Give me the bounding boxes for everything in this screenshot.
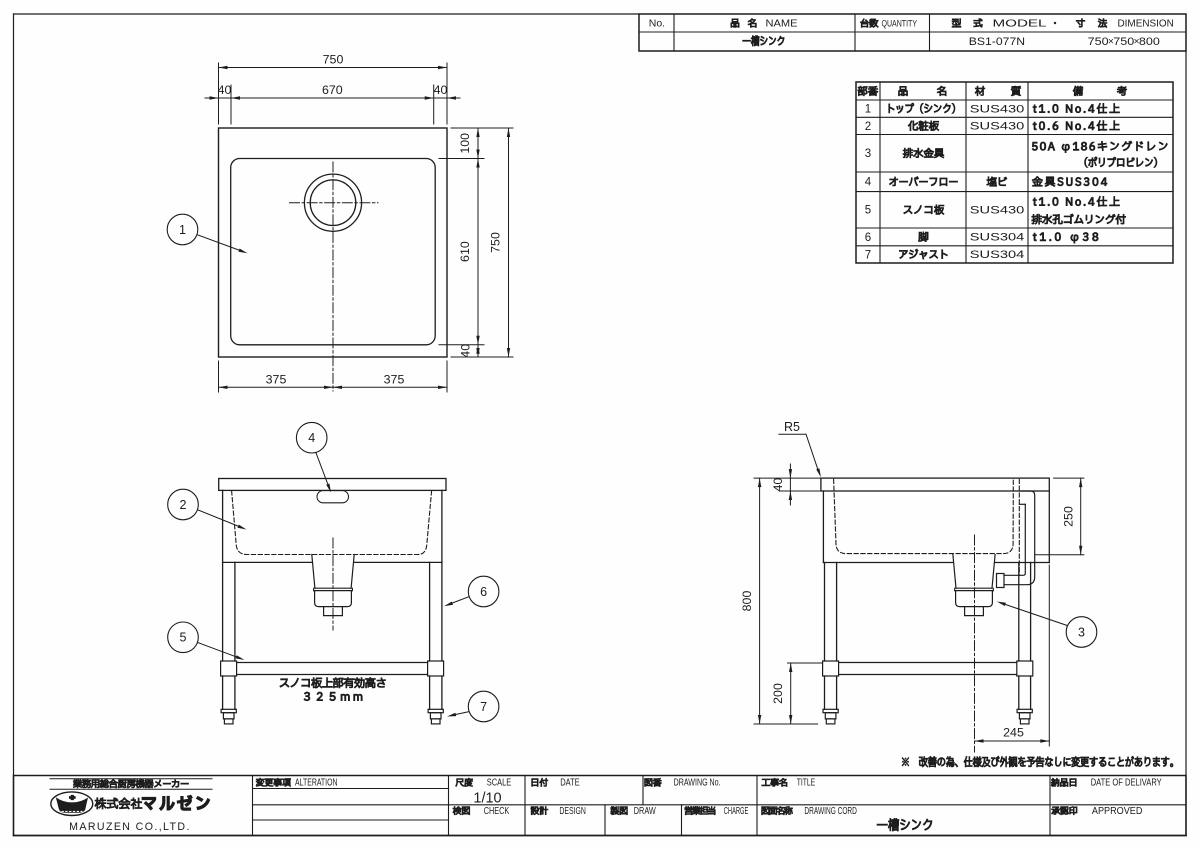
svg-text:DIMENSION: DIMENSION [1118, 18, 1174, 29]
svg-text:SUS430: SUS430 [970, 205, 1025, 217]
svg-text:SUS304: SUS304 [970, 232, 1025, 244]
svg-text:800: 800 [740, 591, 754, 612]
svg-text:DESIGN: DESIGN [559, 806, 586, 817]
svg-text:245: 245 [1003, 726, 1024, 740]
svg-text:1/10: 1/10 [473, 791, 501, 807]
svg-text:2: 2 [865, 121, 871, 133]
svg-text:R5: R5 [784, 420, 800, 434]
svg-text:40: 40 [434, 83, 448, 97]
svg-text:SUS430: SUS430 [970, 104, 1025, 116]
svg-text:3: 3 [865, 148, 871, 160]
svg-text:40: 40 [218, 83, 232, 97]
svg-text:40: 40 [771, 478, 785, 492]
svg-text:BS1-077N: BS1-077N [969, 36, 1025, 48]
svg-text:SUS430: SUS430 [970, 121, 1025, 133]
svg-text:610: 610 [458, 241, 472, 262]
svg-text:DRAW: DRAW [634, 806, 656, 817]
svg-text:SCALE: SCALE [487, 778, 512, 789]
svg-text:200: 200 [771, 683, 785, 704]
svg-text:APPROVED: APPROVED [1092, 806, 1143, 817]
svg-text:5: 5 [180, 631, 187, 645]
svg-text:5: 5 [865, 205, 871, 217]
svg-text:750: 750 [1088, 36, 1109, 48]
svg-text:×: × [1134, 36, 1140, 47]
svg-text:1: 1 [179, 223, 186, 237]
svg-text:NAME: NAME [766, 18, 799, 29]
svg-text:SUS304: SUS304 [970, 249, 1025, 261]
svg-text:750: 750 [1113, 36, 1134, 48]
svg-text:DRAWING No.: DRAWING No. [674, 778, 721, 789]
svg-text:7: 7 [865, 249, 871, 261]
svg-text:MARUZEN CO.,LTD.: MARUZEN CO.,LTD. [69, 821, 191, 833]
svg-text:CHECK: CHECK [484, 806, 510, 817]
svg-text:4: 4 [308, 431, 315, 445]
svg-text:MODEL: MODEL [993, 18, 1048, 29]
svg-text:DRAWING CORD: DRAWING CORD [804, 806, 857, 817]
svg-text:×: × [1108, 36, 1114, 47]
svg-text:6: 6 [480, 585, 487, 599]
svg-text:ALTERATION: ALTERATION [295, 778, 338, 789]
svg-text:375: 375 [384, 372, 405, 386]
svg-text:750: 750 [489, 232, 503, 253]
svg-text:100: 100 [458, 133, 472, 154]
svg-text:1: 1 [865, 104, 871, 116]
svg-text:3: 3 [1078, 625, 1085, 639]
svg-text:DATE: DATE [560, 778, 580, 789]
svg-text:TITLE: TITLE [797, 778, 816, 789]
svg-text:DATE OF DELIVARY: DATE OF DELIVARY [1091, 778, 1162, 789]
svg-text:800: 800 [1139, 36, 1160, 48]
svg-text:375: 375 [266, 372, 287, 386]
svg-text:750: 750 [323, 53, 344, 67]
svg-text:250: 250 [1061, 506, 1075, 527]
svg-text:No.: No. [649, 18, 665, 29]
svg-text:QUANTITY: QUANTITY [882, 18, 918, 28]
svg-text:7: 7 [480, 700, 487, 714]
svg-text:6: 6 [865, 232, 871, 244]
svg-text:40: 40 [459, 344, 473, 358]
svg-text:CHARGE: CHARGE [724, 806, 749, 817]
svg-text:2: 2 [180, 498, 187, 512]
svg-text:670: 670 [322, 83, 343, 97]
svg-text:4: 4 [865, 177, 872, 189]
